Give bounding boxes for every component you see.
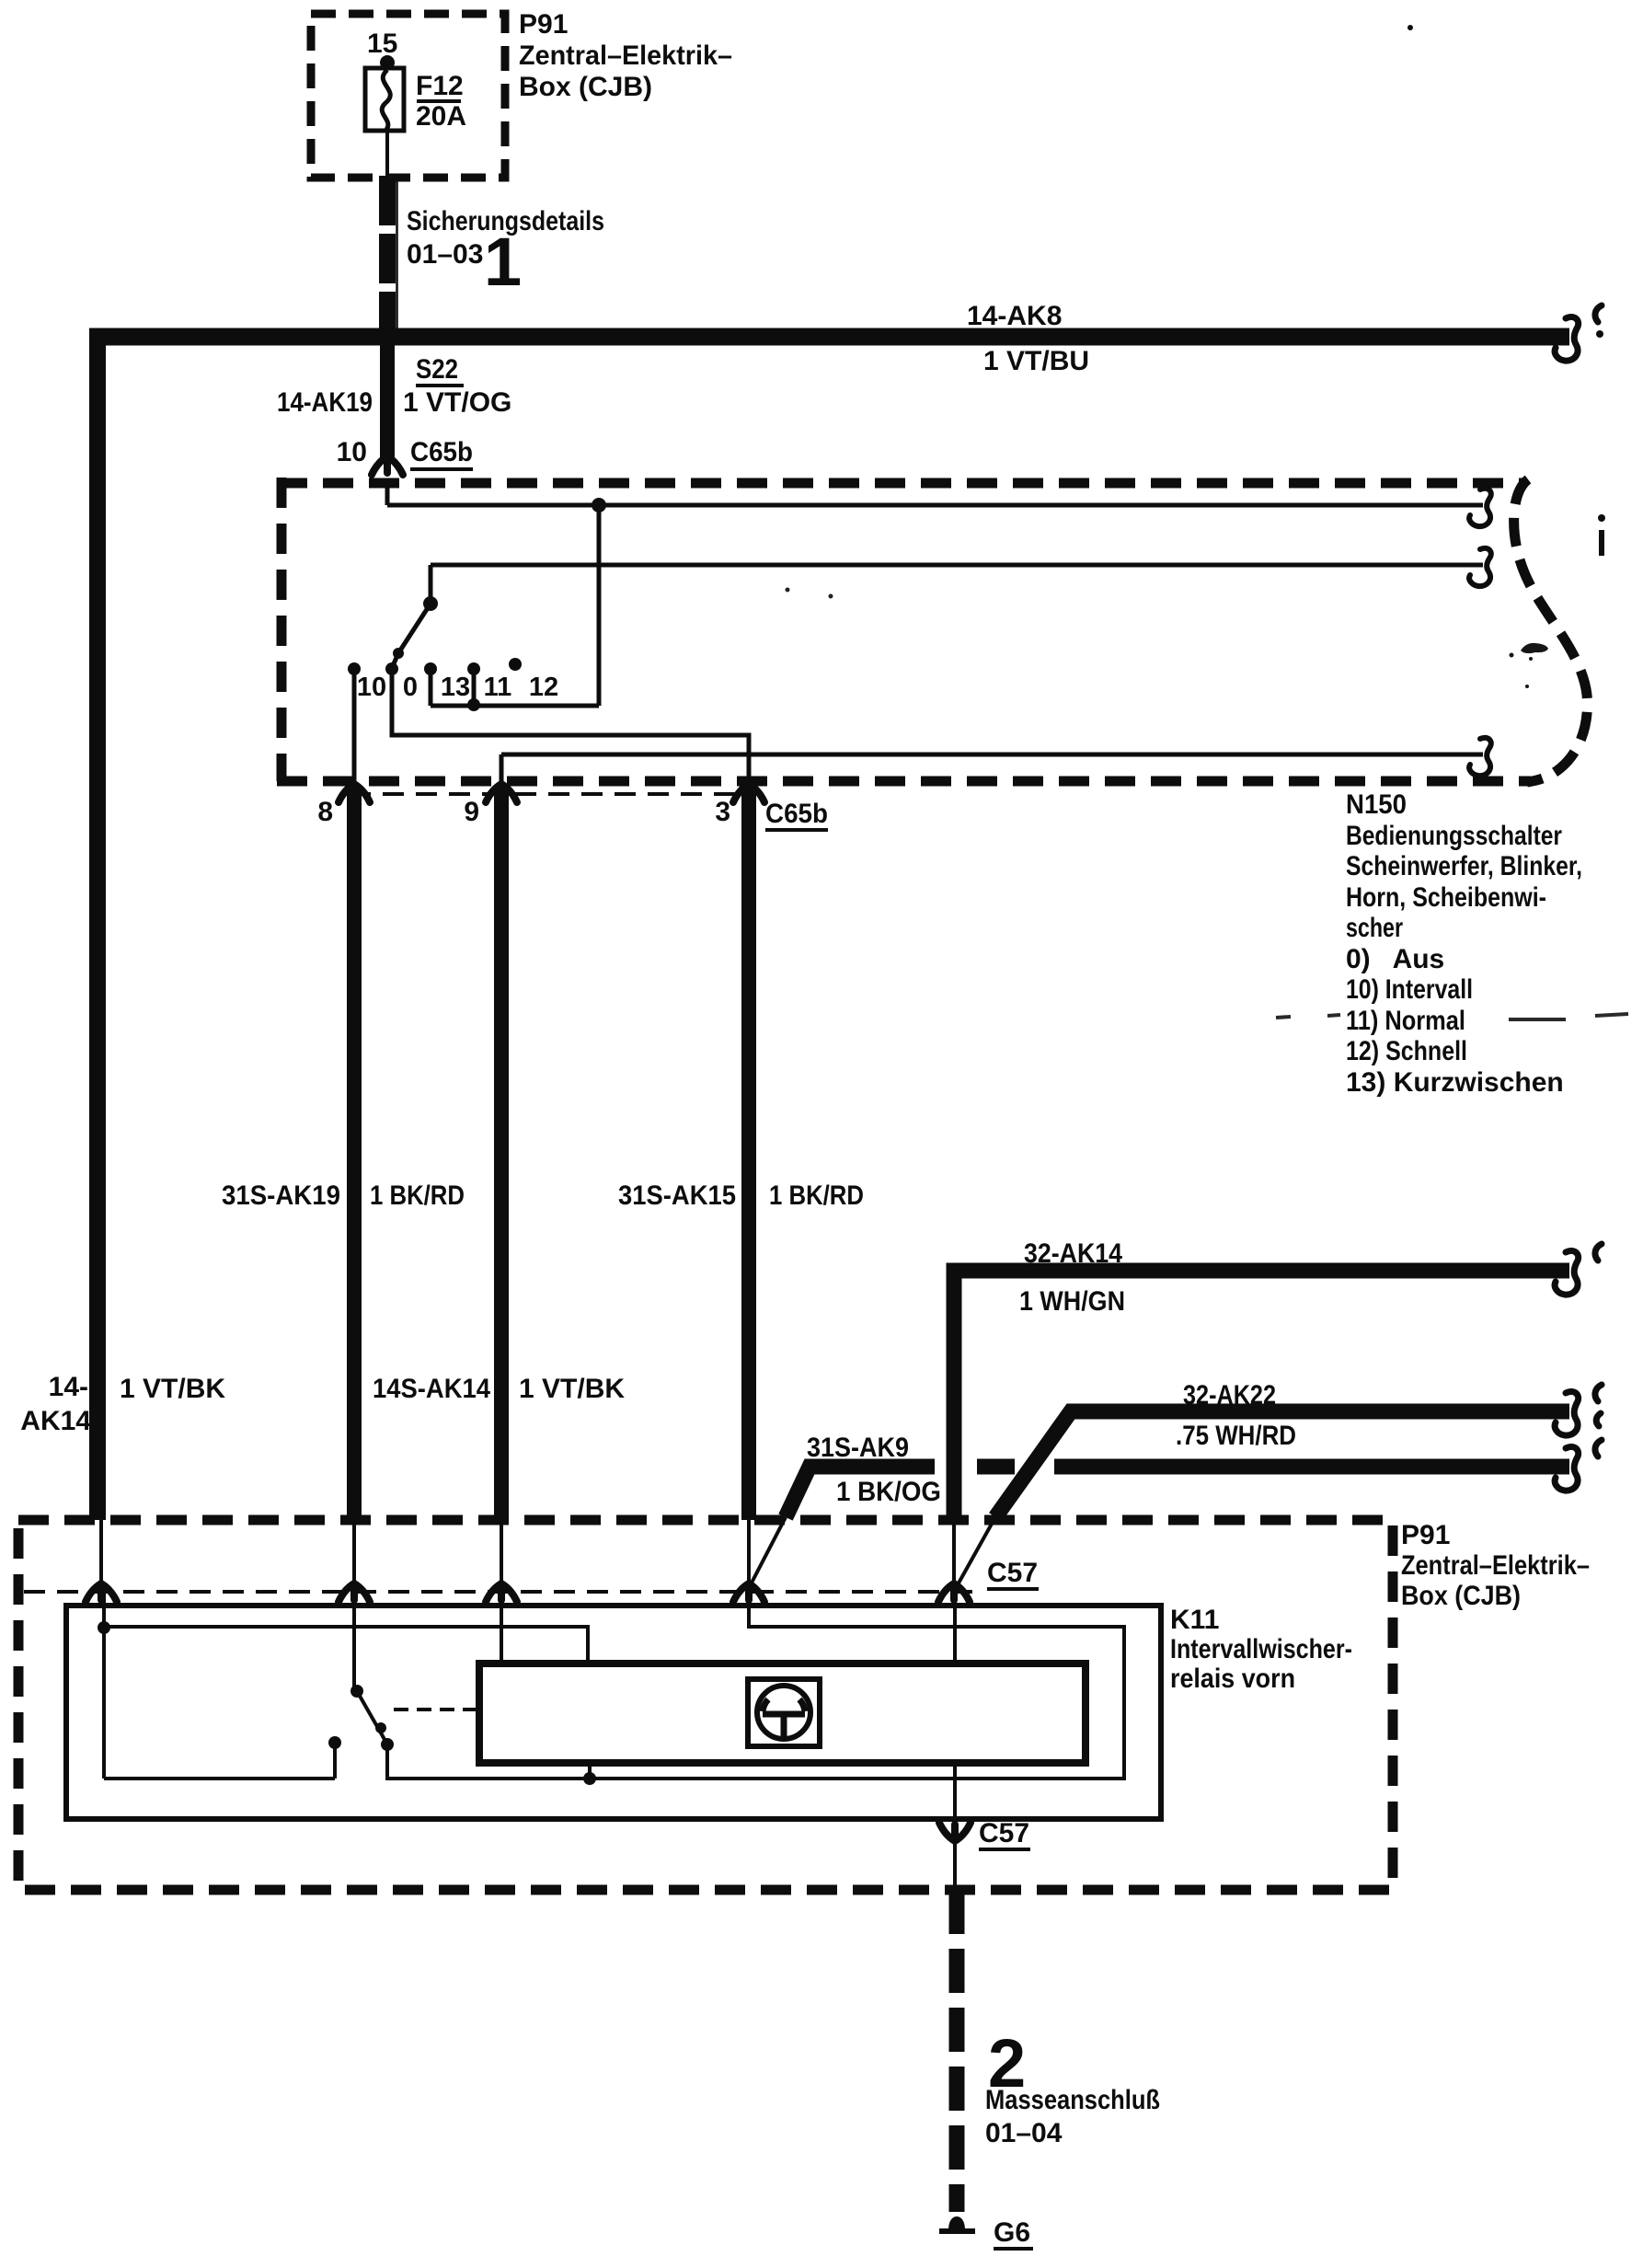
- svg-text:C65b: C65b: [410, 437, 473, 467]
- svg-text:14-AK8: 14-AK8: [967, 301, 1062, 331]
- svg-text:P91: P91: [519, 9, 568, 40]
- svg-text:C57: C57: [979, 1818, 1029, 1848]
- svg-text:Box (CJB): Box (CJB): [1401, 1581, 1521, 1611]
- svg-text:0) Aus: 0) Aus: [1346, 944, 1444, 974]
- svg-text:1 VT/BU: 1 VT/BU: [983, 346, 1089, 376]
- svg-text:32-AK22: 32-AK22: [1183, 1380, 1276, 1410]
- svg-text:Horn, Scheibenwi-: Horn, Scheibenwi-: [1346, 882, 1546, 913]
- svg-text:31S-AK19: 31S-AK19: [222, 1180, 340, 1211]
- svg-text:20A: 20A: [416, 101, 466, 132]
- svg-text:13) Kurzwischen: 13) Kurzwischen: [1346, 1067, 1564, 1098]
- svg-text:12: 12: [529, 673, 558, 702]
- svg-text:32-AK14: 32-AK14: [1024, 1238, 1122, 1269]
- svg-text:1 BK/RD: 1 BK/RD: [370, 1180, 465, 1211]
- svg-text:9: 9: [464, 797, 479, 827]
- svg-text:Bedienungsschalter: Bedienungsschalter: [1346, 821, 1562, 851]
- svg-text:1 WH/GN: 1 WH/GN: [1019, 1286, 1125, 1317]
- svg-text:14S-AK14: 14S-AK14: [373, 1374, 490, 1404]
- svg-text:Scheinwerfer, Blinker,: Scheinwerfer, Blinker,: [1346, 851, 1582, 881]
- svg-text:1 BK/RD: 1 BK/RD: [769, 1180, 864, 1211]
- svg-text:C65b: C65b: [765, 799, 828, 829]
- svg-text:10: 10: [357, 673, 386, 702]
- svg-text:15: 15: [367, 29, 397, 59]
- svg-text:12) Schnell: 12) Schnell: [1346, 1036, 1467, 1066]
- svg-text:1 VT/BK: 1 VT/BK: [120, 1374, 225, 1404]
- svg-text:8: 8: [317, 797, 333, 827]
- svg-text:1 VT/BK: 1 VT/BK: [519, 1374, 625, 1404]
- svg-text:1 VT/OG: 1 VT/OG: [403, 387, 511, 418]
- svg-text:01–03: 01–03: [407, 239, 483, 270]
- svg-text:Zentral–Elektrik–: Zentral–Elektrik–: [519, 40, 732, 71]
- svg-text:31S-AK9: 31S-AK9: [807, 1433, 909, 1463]
- svg-text:31S-AK15: 31S-AK15: [618, 1180, 736, 1211]
- svg-text:N150: N150: [1346, 789, 1407, 820]
- svg-text:scher: scher: [1346, 913, 1403, 943]
- svg-text:14-AK19: 14-AK19: [277, 387, 373, 418]
- svg-text:11: 11: [484, 673, 512, 702]
- svg-text:Zentral–Elektrik–: Zentral–Elektrik–: [1401, 1550, 1590, 1581]
- svg-text:C57: C57: [987, 1558, 1038, 1588]
- svg-text:S22: S22: [416, 354, 458, 385]
- svg-text:3: 3: [715, 797, 730, 827]
- svg-text:10: 10: [337, 437, 367, 467]
- svg-text:10) Intervall: 10) Intervall: [1346, 974, 1473, 1005]
- svg-text:11) Normal: 11) Normal: [1346, 1006, 1465, 1036]
- svg-text:0: 0: [403, 673, 418, 702]
- svg-text:Masseanschluß: Masseanschluß: [985, 2085, 1160, 2115]
- svg-text:K11: K11: [1170, 1605, 1219, 1635]
- svg-text:relais vorn: relais vorn: [1170, 1664, 1295, 1694]
- svg-text:AK14: AK14: [20, 1406, 91, 1436]
- svg-text:F12: F12: [416, 71, 464, 101]
- svg-text:01–04: 01–04: [985, 2118, 1063, 2148]
- svg-text:.75 WH/RD: .75 WH/RD: [1176, 1421, 1296, 1451]
- svg-text:1 BK/OG: 1 BK/OG: [836, 1477, 941, 1507]
- svg-text:14-: 14-: [49, 1372, 88, 1402]
- svg-text:P91: P91: [1401, 1520, 1450, 1550]
- svg-text:13: 13: [441, 673, 470, 702]
- svg-text:Box (CJB): Box (CJB): [519, 72, 652, 102]
- svg-text:1: 1: [484, 224, 522, 300]
- svg-text:G6: G6: [994, 2217, 1030, 2248]
- svg-text:Intervallwischer-: Intervallwischer-: [1170, 1634, 1352, 1664]
